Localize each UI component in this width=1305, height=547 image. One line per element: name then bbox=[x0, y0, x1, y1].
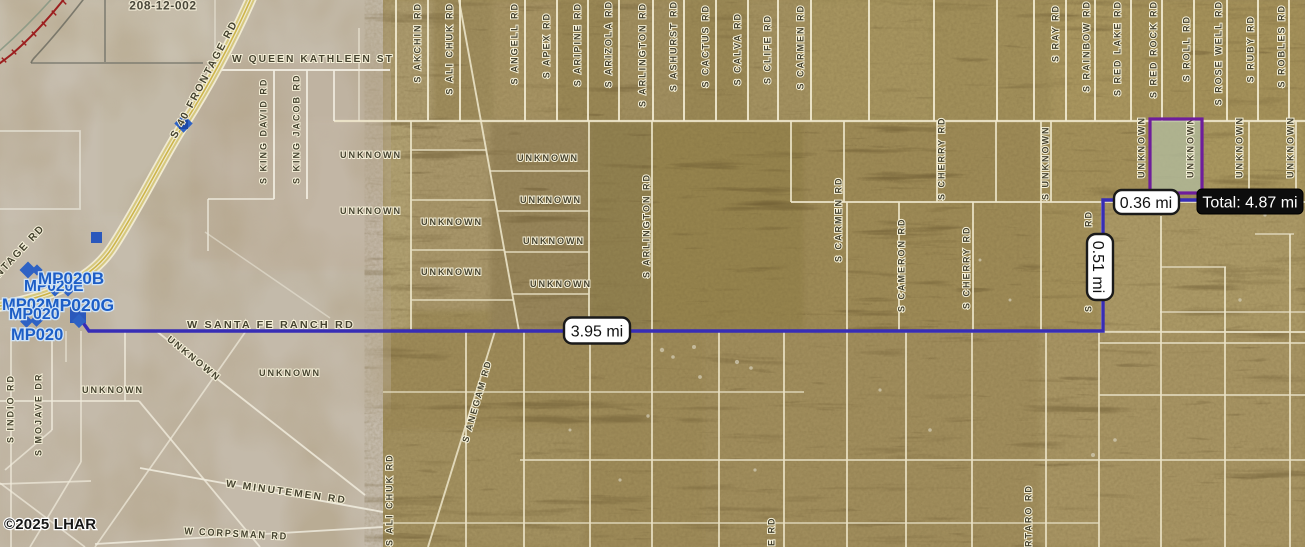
svg-text:S INDIO RD: S INDIO RD bbox=[6, 374, 16, 443]
svg-text:MP020: MP020 bbox=[11, 326, 63, 344]
svg-text:S CHERRY RD: S CHERRY RD bbox=[937, 116, 947, 200]
svg-text:S RAINBOW RD: S RAINBOW RD bbox=[1082, 0, 1092, 92]
svg-text:Total: 4.87 mi: Total: 4.87 mi bbox=[1202, 195, 1297, 212]
svg-text:S CACTUS RD: S CACTUS RD bbox=[701, 4, 711, 88]
svg-text:S CALVA RD: S CALVA RD bbox=[733, 12, 743, 85]
svg-text:S ROBLES RD: S ROBLES RD bbox=[1277, 4, 1287, 88]
svg-text:UNKNOWN: UNKNOWN bbox=[340, 150, 402, 161]
svg-text:EE RD: EE RD bbox=[767, 516, 777, 547]
svg-text:UNKNOWN: UNKNOWN bbox=[340, 206, 402, 217]
svg-text:S MOJAVE DR: S MOJAVE DR bbox=[34, 373, 44, 456]
svg-text:0.36 mi: 0.36 mi bbox=[1120, 195, 1172, 212]
svg-text:UNKNOWN: UNKNOWN bbox=[1137, 116, 1147, 178]
svg-text:S ROSE WELL RD: S ROSE WELL RD bbox=[1214, 0, 1224, 105]
svg-text:S RED ROCK RD: S RED ROCK RD bbox=[1149, 0, 1159, 98]
svg-text:MP020: MP020 bbox=[9, 306, 60, 323]
svg-text:S ARIPINE RD: S ARIPINE RD bbox=[573, 2, 583, 86]
svg-text:UNKNOWN: UNKNOWN bbox=[421, 267, 483, 278]
svg-text:UNKNOWN: UNKNOWN bbox=[82, 385, 144, 396]
svg-text:UNKNOWN: UNKNOWN bbox=[1186, 116, 1196, 178]
svg-text:S CARMEN RD: S CARMEN RD bbox=[796, 4, 806, 90]
svg-text:S CAMERON RD: S CAMERON RD bbox=[897, 217, 907, 312]
svg-text:S RED LAKE RD: S RED LAKE RD bbox=[1113, 0, 1123, 96]
svg-text:UNKNOWN: UNKNOWN bbox=[259, 368, 321, 379]
svg-text:RD: RD bbox=[1084, 210, 1094, 227]
svg-text:UNKNOWN: UNKNOWN bbox=[520, 195, 582, 206]
svg-text:©2025 LHAR: ©2025 LHAR bbox=[4, 516, 96, 533]
svg-text:UNKNOWN: UNKNOWN bbox=[1235, 116, 1245, 178]
svg-text:S KING JACOB RD: S KING JACOB RD bbox=[292, 73, 302, 184]
svg-text:ORTARO RD: ORTARO RD bbox=[1024, 484, 1034, 547]
svg-text:208-12-002: 208-12-002 bbox=[129, 0, 196, 13]
svg-text:S ROLL RD: S ROLL RD bbox=[1182, 15, 1192, 81]
svg-text:S RUBY RD: S RUBY RD bbox=[1246, 15, 1256, 82]
svg-text:UNKNOWN: UNKNOWN bbox=[421, 217, 483, 228]
svg-text:S ANGELL RD: S ANGELL RD bbox=[510, 2, 520, 85]
svg-text:UNKNOWN: UNKNOWN bbox=[517, 153, 579, 164]
svg-text:S APEX RD: S APEX RD bbox=[542, 12, 552, 78]
svg-text:S ARLINGTON RD: S ARLINGTON RD bbox=[638, 2, 648, 107]
svg-text:S CHERRY RD: S CHERRY RD bbox=[962, 225, 972, 309]
svg-text:S: S bbox=[1084, 304, 1094, 312]
svg-text:S AKCHIN RD: S AKCHIN RD bbox=[413, 2, 423, 83]
svg-text:UNKNOWN: UNKNOWN bbox=[523, 236, 585, 247]
svg-text:S ARLINGTON RD: S ARLINGTON RD bbox=[642, 173, 652, 278]
svg-text:S CLIFE RD: S CLIFE RD bbox=[763, 14, 773, 84]
svg-text:S KING DAVID RD: S KING DAVID RD bbox=[259, 78, 269, 184]
svg-text:W QUEEN KATHLEEN ST: W QUEEN KATHLEEN ST bbox=[232, 54, 394, 65]
svg-text:S UNKNOWN: S UNKNOWN bbox=[1041, 126, 1051, 201]
svg-text:S ASHURST RD: S ASHURST RD bbox=[669, 0, 679, 91]
svg-text:UNKNOWN: UNKNOWN bbox=[530, 279, 592, 290]
svg-text:MP020B: MP020B bbox=[38, 269, 104, 288]
svg-text:S CARMEN RD: S CARMEN RD bbox=[834, 176, 844, 262]
svg-text:S ARIZOLA RD: S ARIZOLA RD bbox=[604, 0, 614, 87]
svg-text:UNKNOWN: UNKNOWN bbox=[1286, 116, 1296, 178]
svg-text:S ALI CHUK RD: S ALI CHUK RD bbox=[445, 2, 455, 95]
svg-text:3.95 mi: 3.95 mi bbox=[571, 324, 623, 341]
svg-text:S ALI CHUK RD: S ALI CHUK RD bbox=[385, 453, 395, 546]
svg-text:0.51 mi: 0.51 mi bbox=[1089, 241, 1106, 293]
svg-text:S RAY RD: S RAY RD bbox=[1051, 4, 1061, 62]
